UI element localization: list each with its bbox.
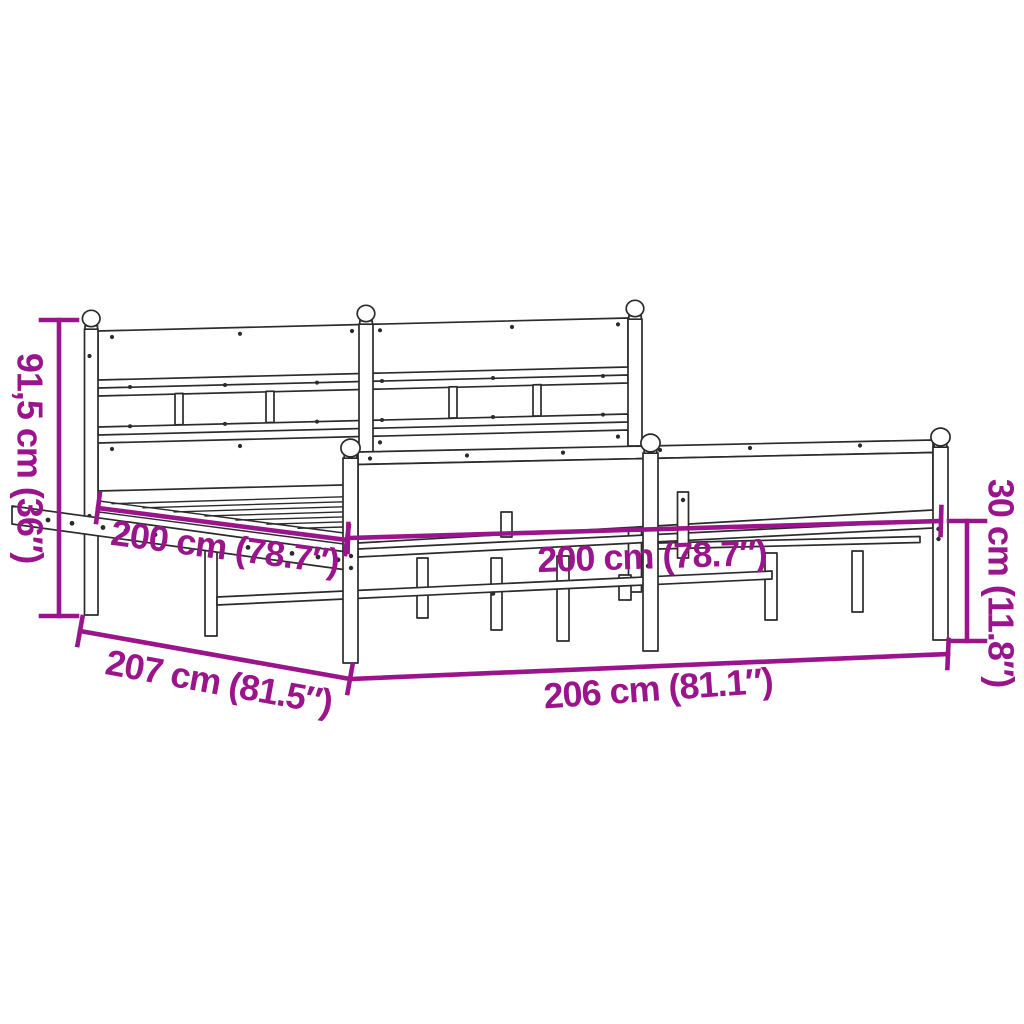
bed-frame-dimension-illustration: 91,5 cm (36″) 200 cm (78.7″) 200 cm (78.…: [0, 0, 1024, 1024]
dimension-footboard-height: [949, 521, 985, 641]
bed-frame-drawing: [12, 300, 950, 663]
label-footboard-height: 30 cm (11.8″): [981, 479, 1022, 687]
product-dimension-diagram: 91,5 cm (36″) 200 cm (78.7″) 200 cm (78.…: [0, 0, 1024, 1024]
label-inner-width: 200 cm (78.7″): [537, 532, 768, 580]
label-headboard-height: 91,5 cm (36″): [10, 353, 51, 563]
